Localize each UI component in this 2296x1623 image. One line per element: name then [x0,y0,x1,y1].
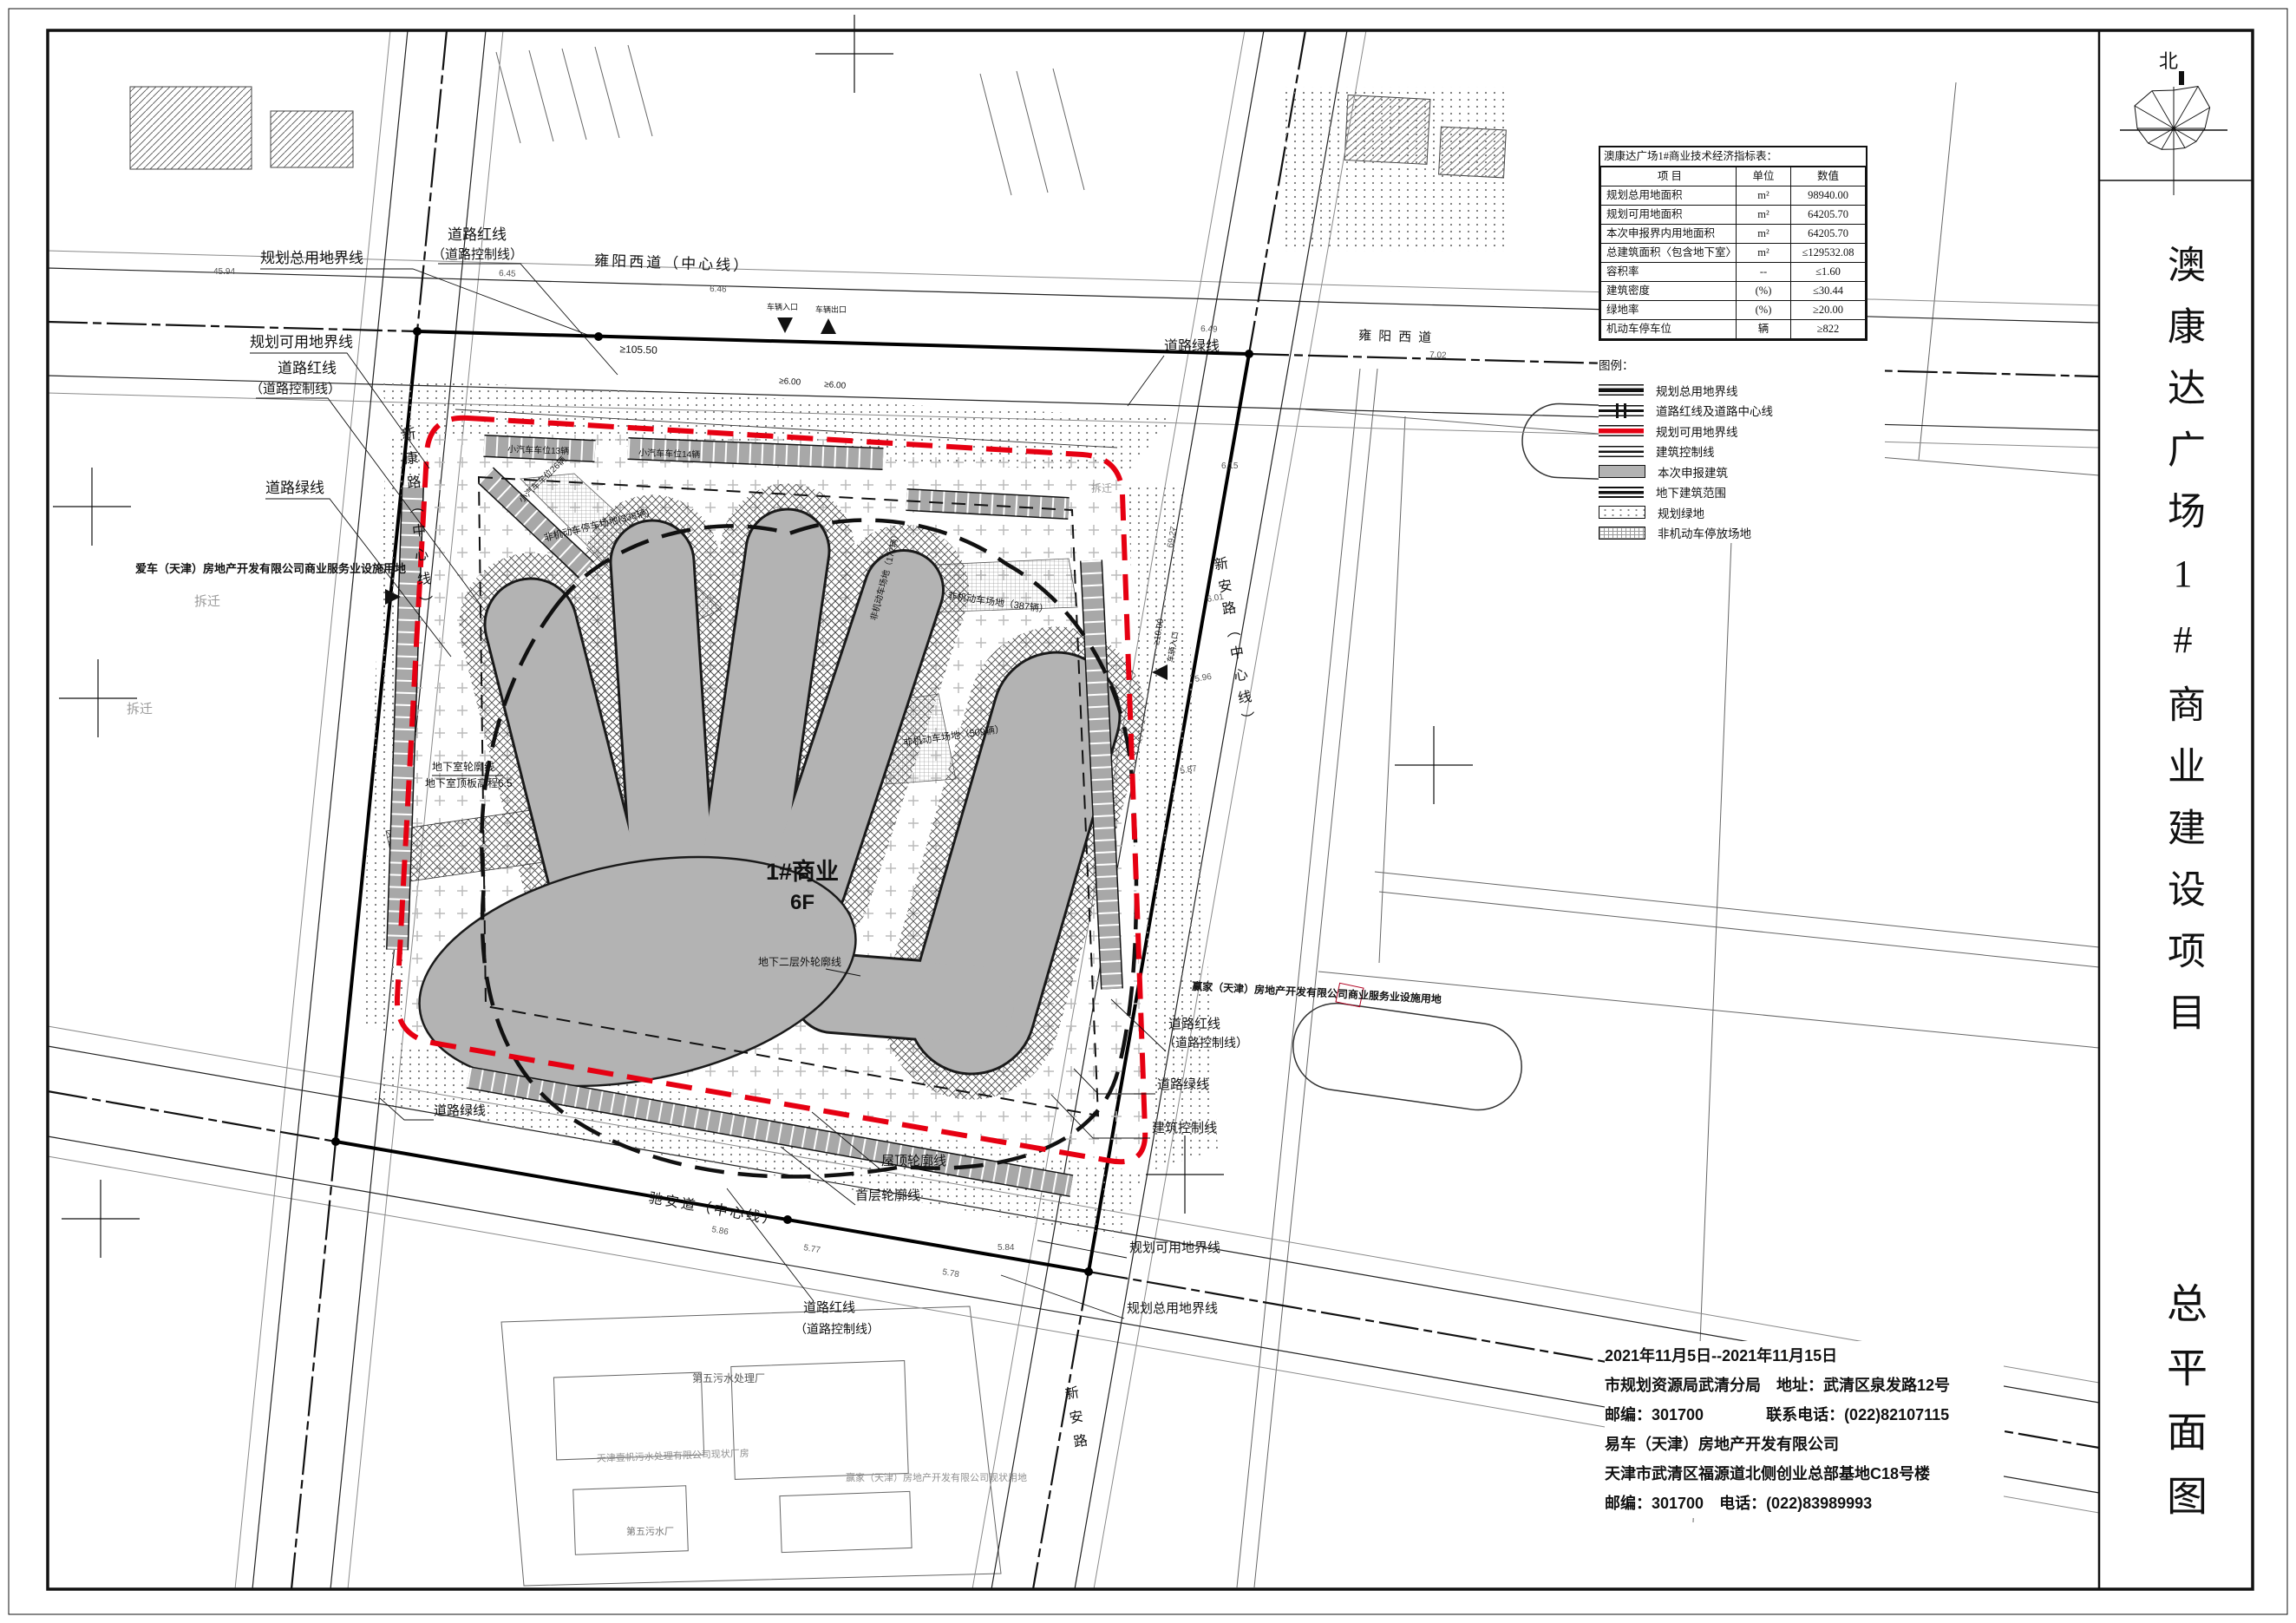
table-row: 容积率--≤1.60 [1601,263,1866,282]
table-cell: 本次申报界内用地面积 [1601,225,1737,244]
note-line: 天津市武清区福源道北侧创业总部基地C18号楼 [1605,1459,2004,1489]
map-label: 规划总用地界线 [1127,1301,1218,1316]
building-control-swatch-icon [1599,446,1644,457]
col-unit: 单位 [1737,167,1791,187]
legend-item-label: 地下建筑范围 [1656,483,1726,501]
map-label: 6.15 [1221,461,1239,471]
legend-item-label: 道路红线及道路中心线 [1656,402,1773,419]
map-label: 首层轮廓线 [855,1188,920,1203]
table-cell: (%) [1737,282,1791,301]
legend-item-label: 规划可用地界线 [1656,422,1738,440]
indicator-table: 澳康达广场1#商业技术经济指标表： 项 目 单位 数值 规划总用地面积m²989… [1599,146,1868,341]
map-label: （道路控制线） [250,382,341,396]
map-label: 赢家（天津）房地产开发有限公司现状用地 [846,1471,1027,1483]
table-cell: m² [1737,244,1791,263]
map-label: 雍阳西道 [1358,328,1439,345]
north-rose-spoke [2135,106,2174,128]
north-label: 北 [2159,50,2178,72]
legend-item-label: 建筑控制线 [1656,442,1715,460]
col-item: 项 目 [1601,167,1737,187]
map-label: 道路红线 [803,1300,855,1315]
map-label: （道路控制线） [1163,1036,1248,1050]
legend-item: 规划可用地界线 [1599,421,1885,442]
underground-swatch-icon [1599,487,1644,498]
project-title-vertical: 澳康达广场1#商业建设项目 [2155,245,2210,1054]
map-label: 爱车（天津）房地产开发有限公司商业服务业设施用地 [135,562,406,575]
approval-notes: 2021年11月5日--2021年11月15日市规划资源局武清分局 地址：武清区… [1605,1341,2004,1518]
north-rose-spoke [2152,91,2174,128]
map-label: 驰安道（中心线） [647,1190,780,1228]
site-exit-marker [821,318,836,334]
north-rose-spoke [2174,87,2198,129]
col-value: 数值 [1791,167,1866,187]
table-row: 本次申报界内用地面积m²64205.70 [1601,225,1866,244]
site-entrance-marker [777,317,793,333]
table-cell: m² [1737,187,1791,206]
table-row: 规划可用地面积m²64205.70 [1601,206,1866,225]
map-label: （道路控制线） [795,1322,880,1336]
map-label: 5.96 [1194,672,1213,684]
table-cell: 辆 [1737,320,1791,339]
table-row: 规划总用地面积m²98940.00 [1601,187,1866,206]
legend-item: 规划总用地界线 [1599,380,1885,401]
note-line: 邮编：301700 电话：(022)83989993 [1605,1489,2004,1518]
map-label: 5.86 [710,1225,729,1237]
legend-item-label: 规划总用地界线 [1656,382,1738,399]
map-label: 第五污水厂 [626,1525,674,1537]
map-label: 地下室轮廓线 [432,760,494,773]
legend-item: 非机动车停放场地 [1599,523,1885,544]
map-label: 6.46 [710,285,727,295]
map-label: 建筑控制线 [1152,1121,1217,1135]
table-cell: 绿地率 [1601,301,1737,320]
map-label: 7.02 [1429,350,1447,361]
legend-item-label: 非机动车停放场地 [1658,524,1751,541]
legend-item: 规划绿地 [1599,502,1885,523]
note-line: 2021年11月5日--2021年11月15日 [1605,1341,2004,1371]
map-label: 5.77 [802,1243,821,1255]
legend-item: 道路红线及道路中心线 [1599,401,1885,422]
table-cell: (%) [1737,301,1791,320]
legend: 图例： 规划总用地界线道路红线及道路中心线规划可用地界线建筑控制线本次申报建筑地… [1599,356,1885,543]
map-label: 新安路 [1062,1384,1090,1459]
map-label: ≥6.00 [779,376,801,388]
map-label: 拆迁 [127,702,153,717]
map-label: 6.49 [1200,324,1218,335]
bike-parking-swatch-icon [1599,527,1645,540]
north-arrow-icon: 北 [2120,50,2227,195]
legend-item: 地下建筑范围 [1599,482,1885,503]
table-cell: 规划总用地面积 [1601,187,1737,206]
usable-redline-swatch-icon [1599,425,1644,436]
map-label: 道路绿线 [265,480,324,496]
north-rose-spoke [2174,108,2210,128]
table-cell: 规划可用地面积 [1601,206,1737,225]
map-label: 地下二层外轮廓线 [758,955,841,968]
label-leader-line [1001,1275,1124,1319]
map-label: 5.84 [998,1243,1015,1253]
table-header-row: 项 目 单位 数值 [1601,167,1866,187]
table-cell: ≤129532.08 [1791,244,1866,263]
map-label: 车辆出口 [815,304,847,314]
map-label: ≥6.00 [824,380,847,391]
table-row: 建筑密度(%)≤30.44 [1601,282,1866,301]
note-line: 易车（天津）房地产开发有限公司 [1605,1430,2004,1459]
table-cell: 64205.70 [1791,206,1866,225]
label-leader-line [727,1188,814,1301]
map-label: （道路控制线） [432,247,523,262]
drawing-title-vertical: 总平面图 [2153,1282,2213,1539]
map-label: 拆迁 [1091,481,1112,494]
label-leader-line [1128,356,1164,406]
table-cell: ≥20.00 [1791,301,1866,320]
legend-item-label: 规划绿地 [1658,504,1704,521]
map-label: 地下室顶板高程6.5 [425,776,513,789]
map-label: 天津壹帆污水处理有限公司现状厂房 [597,1447,749,1464]
green-swatch-icon [1599,506,1645,519]
map-label: 6.45 [499,269,516,279]
table-cell: 建筑密度 [1601,282,1737,301]
map-label: 道路绿线 [434,1103,486,1118]
pond-outline [1287,998,1527,1116]
north-rose-outline [2135,87,2210,150]
table-cell: m² [1737,206,1791,225]
map-label: 道路红线 [1168,1017,1220,1031]
map-label: 第五污水处理厂 [692,1372,765,1384]
road-redline-swatch-icon [1599,405,1644,416]
map-label: 道路绿线 [1164,338,1220,354]
table-row: 绿地率(%)≥20.00 [1601,301,1866,320]
building-1-commercial [386,551,1056,1120]
map-label: 道路绿线 [1157,1077,1209,1092]
note-line: 邮编：301700 联系电话：(022)82107115 [1605,1400,2004,1430]
map-label: ≥105.50 [619,343,657,357]
note-line: 市规划资源局武清分局 地址：武清区泉发路12号 [1605,1371,2004,1400]
drawing-sheet: 北 规划总用地界线道路红线（道路控制线）规划可用地界线道路红线（道路控制线）道路… [0,0,2296,1623]
building-floors-label: 6F [790,891,814,914]
table-cell: ≤30.44 [1791,282,1866,301]
indicator-table-title: 澳康达广场1#商业技术经济指标表： [1600,147,1866,167]
legend-item: 建筑控制线 [1599,442,1885,462]
map-label: 5.78 [941,1267,960,1279]
map-label: 道路红线 [278,360,337,376]
table-row: 机动车停车位辆≥822 [1601,320,1866,339]
map-label: 赢家（天津）房地产开发有限公司商业服务业设施用地 [1192,979,1442,1005]
table-row: 总建筑面积〈包含地下室〉m²≤129532.08 [1601,244,1866,263]
table-cell: 容积率 [1601,263,1737,282]
legend-item: 本次申报建筑 [1599,461,1885,482]
map-label: 雍阳西道（中心线） [594,252,751,274]
map-label: 45.94 [213,267,235,277]
table-cell: 98940.00 [1791,187,1866,206]
legend-item-label: 本次申报建筑 [1658,463,1728,481]
map-label: 规划可用地界线 [1129,1240,1220,1255]
table-cell: ≥822 [1791,320,1866,339]
declared-building-swatch-icon [1599,465,1645,478]
legend-title: 图例： [1599,356,1885,376]
map-label: 规划可用地界线 [250,334,353,350]
map-label: 屋顶轮廓线 [881,1154,946,1168]
map-label: 车辆入口 [767,302,798,311]
map-label: 拆迁 [194,594,220,609]
table-cell: 64205.70 [1791,225,1866,244]
map-label: 规划总用地界线 [260,250,363,266]
boundary-total-swatch-icon [1599,384,1644,396]
table-cell: 机动车停车位 [1601,320,1737,339]
table-cell: -- [1737,263,1791,282]
map-label: 道路红线 [448,226,507,243]
building-label: 1#商业 [766,859,839,885]
table-cell: m² [1737,225,1791,244]
table-cell: 总建筑面积〈包含地下室〉 [1601,244,1737,263]
table-cell: ≤1.60 [1791,263,1866,282]
